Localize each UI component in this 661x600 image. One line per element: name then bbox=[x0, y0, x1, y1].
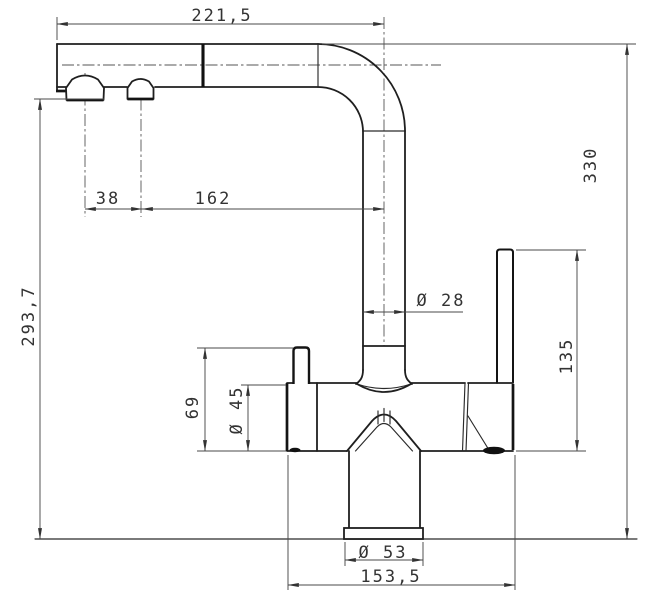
dim-label-spout-length: 221,5 bbox=[191, 6, 252, 26]
housing-bottom-shadow bbox=[483, 447, 505, 455]
dim-label-footprint-width: 153,5 bbox=[360, 567, 421, 587]
handle-housing bbox=[463, 383, 514, 454]
base-neck bbox=[347, 409, 421, 529]
dim-label-overall-height: 330 bbox=[581, 147, 601, 184]
dimension-lines bbox=[34, 17, 636, 590]
dim-label-body-diameter: Ø 45 bbox=[227, 386, 247, 435]
dim-label-pipe-diameter: Ø 28 bbox=[417, 291, 466, 311]
filter-knob bbox=[294, 348, 310, 385]
faucet-dimension-drawing: 221,5 38 162 293,7 Ø 28 69 Ø 45 135 330 … bbox=[0, 0, 661, 600]
spout-bend bbox=[318, 44, 405, 131]
mixer-body bbox=[287, 383, 513, 452]
centerlines bbox=[62, 17, 441, 346]
dim-label-base-plate-diameter: Ø 53 bbox=[359, 543, 408, 563]
aerator-front bbox=[66, 76, 104, 101]
dim-label-height-to-spout: 293,7 bbox=[19, 285, 39, 346]
technical-drawing-sheet: 221,5 38 162 293,7 Ø 28 69 Ø 45 135 330 … bbox=[0, 0, 661, 600]
dim-label-lever-height: 135 bbox=[557, 338, 577, 375]
dim-label-aerator-spacing: 38 bbox=[96, 189, 120, 209]
dim-label-knob-top-height: 69 bbox=[183, 395, 203, 419]
lever-handle bbox=[497, 250, 513, 384]
base-flange bbox=[344, 528, 423, 539]
dim-label-spout-reach: 162 bbox=[195, 189, 232, 209]
lever-base-edge bbox=[468, 416, 489, 450]
body-left-shadow bbox=[290, 448, 301, 452]
aerator-rear bbox=[128, 79, 154, 99]
